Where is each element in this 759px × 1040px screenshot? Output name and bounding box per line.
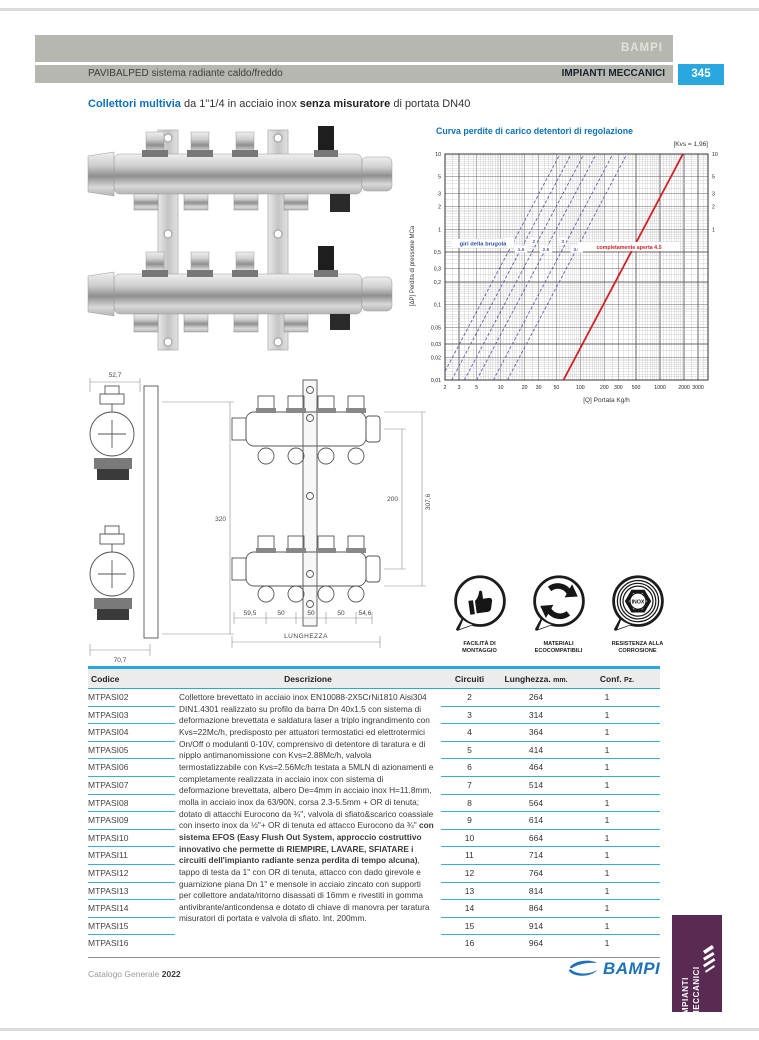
circuiti-cell: 12: [441, 865, 498, 882]
x-tick: 200: [600, 385, 609, 391]
x-tick: 500: [632, 385, 641, 391]
badge-label-line1: RESISTENZA ALLA: [598, 641, 677, 648]
circuiti-cell: 11: [441, 847, 498, 864]
catalog-page: BAMPI PAVIBALPED sistema radiante caldo/…: [0, 0, 759, 1040]
table-row: 75141: [441, 777, 660, 795]
table-row: 43641: [441, 724, 660, 742]
table-row: 33141: [441, 707, 660, 725]
section-side-tab: IMPIANTI MECCANICI: [672, 915, 722, 1012]
header-circuiti: Circuiti: [441, 674, 498, 684]
values-column: 2264133141436415414164641751418564196141…: [441, 689, 660, 953]
recycle-icon: [529, 572, 589, 634]
conf-cell: 1: [574, 759, 660, 776]
lunghezza-cell: 314: [498, 707, 574, 724]
setting-curve: [440, 154, 560, 380]
circuiti-cell: 14: [441, 900, 498, 917]
curve-label: 3: [561, 239, 564, 245]
title-bold-2: senza misuratore: [300, 98, 390, 110]
page-number-badge: 345: [678, 64, 724, 85]
chart-title: Curva perdite di carico detentori di reg…: [436, 126, 742, 136]
front-view: [232, 380, 380, 626]
table-row: 127641: [441, 865, 660, 883]
lunghezza-cell: 664: [498, 830, 574, 847]
table-row: 54141: [441, 742, 660, 760]
x-tick: 3000: [692, 385, 704, 391]
circuiti-cell: 16: [441, 935, 498, 953]
badge-label: RESISTENZA ALLA CORROSIONE: [598, 641, 677, 654]
lunghezza-cell: 264: [498, 689, 574, 706]
x-tick: 50: [553, 385, 559, 391]
header-divider: [35, 62, 673, 65]
code-cell: MTPASI10: [88, 830, 175, 848]
dim-side-height: 320: [215, 516, 226, 523]
dim-length-label: LUNGHEZZA: [284, 633, 328, 640]
y-tick-left: 0,3: [434, 267, 441, 273]
badge-label-line2: MONTAGGIO: [440, 648, 519, 655]
kvs-label: [Kvs = 1,96]: [673, 141, 708, 148]
circuiti-cell: 5: [441, 742, 498, 759]
lunghezza-cell: 414: [498, 742, 574, 759]
badge-corrosion-resistance: INOX RESISTENZA ALLA CORROSIONE: [598, 572, 677, 654]
header-band: BAMPI PAVIBALPED sistema radiante caldo/…: [35, 35, 673, 83]
dim-total-height: 307,6: [425, 493, 432, 510]
table-body: MTPASI02MTPASI03MTPASI04MTPASI05MTPASI06…: [88, 689, 660, 953]
badge-label-line2: ECOCOMPATIBILI: [519, 648, 598, 655]
header-lunghezza: Lunghezza. mm.: [498, 674, 574, 684]
y-tick-left: 1: [438, 227, 441, 233]
badge-label-line1: FACILITÀ DI: [440, 641, 519, 648]
lunghezza-cell: 564: [498, 795, 574, 812]
conf-cell: 1: [574, 724, 660, 741]
y-tick-left: 2: [438, 205, 441, 211]
x-tick: 5: [475, 385, 478, 391]
x-tick: 1000: [654, 385, 666, 391]
circuiti-cell: 7: [441, 777, 498, 794]
description-column: Collettore brevettato in acciaio inox EN…: [175, 689, 441, 953]
conf-cell: 1: [574, 830, 660, 847]
loss-curve-plot: 11.522.533.5giri della brugolacompletame…: [406, 136, 742, 412]
brugola-label: giri della brugola: [460, 242, 507, 248]
circuiti-cell: 10: [441, 830, 498, 847]
code-cell: MTPASI11: [88, 847, 175, 865]
dim-top-width: 52,7: [109, 372, 122, 379]
lunghezza-cell: 364: [498, 724, 574, 741]
inox-icon: INOX: [608, 572, 668, 634]
y-tick-left: 0,1: [434, 303, 441, 309]
y-tick-right: 2: [712, 205, 715, 211]
table-row: 96141: [441, 812, 660, 830]
y-tick-left: 0,03: [431, 342, 441, 348]
lunghezza-cell: 514: [498, 777, 574, 794]
y-tick-left: 0,02: [431, 355, 441, 361]
conf-cell: 1: [574, 707, 660, 724]
code-cell: MTPASI08: [88, 795, 175, 813]
y-tick-left: 0,5: [434, 250, 441, 256]
lunghezza-cell: 964: [498, 935, 574, 953]
table-row: 85641: [441, 795, 660, 813]
x-tick: 30: [536, 385, 542, 391]
x-tick: 2000: [678, 385, 690, 391]
table-row: 148641: [441, 900, 660, 918]
dim-bottom-width: 70,7: [114, 657, 127, 664]
table-row: 64641: [441, 759, 660, 777]
y-tick-right: 3: [712, 191, 715, 197]
badge-label-line2: CORROSIONE: [598, 648, 677, 655]
side-tab-line1: IMPIANTI: [680, 925, 691, 1017]
x-tick: 100: [576, 385, 585, 391]
manifold-bottom-bar: [88, 246, 392, 332]
brand-text: BAMPI: [621, 42, 663, 54]
conf-cell: 1: [574, 900, 660, 917]
conf-cell: 1: [574, 812, 660, 829]
catalog-year: 2022: [162, 969, 181, 979]
badge-easy-mounting: FACILITÀ DI MONTAGGIO: [440, 572, 519, 654]
conf-cell: 1: [574, 847, 660, 864]
x-tick: 2: [444, 385, 447, 391]
code-cell: MTPASI09: [88, 812, 175, 830]
table-row: 138141: [441, 883, 660, 901]
x-tick: 3: [458, 385, 461, 391]
y-tick-right: 10: [712, 152, 718, 158]
pipe-fitting-icon: [701, 943, 717, 973]
title-bold-1: Collettori multivia: [88, 98, 181, 110]
lunghezza-cell: 464: [498, 759, 574, 776]
table-row: 106641: [441, 830, 660, 848]
table-row: 117141: [441, 847, 660, 865]
circuiti-cell: 13: [441, 883, 498, 900]
circuiti-cell: 8: [441, 795, 498, 812]
product-table: Codice Descrizione Circuiti Lunghezza. m…: [88, 666, 660, 953]
y-axis-label: [ΔP] Perdita di pressione MCa: [410, 225, 416, 306]
fully-open-curve: [563, 154, 683, 380]
code-column: MTPASI02MTPASI03MTPASI04MTPASI05MTPASI06…: [88, 689, 175, 953]
footer-catalog-text: Catalogo Generale 2022: [88, 969, 181, 979]
y-tick-left: 0,2: [434, 280, 441, 286]
code-cell: MTPASI16: [88, 935, 175, 953]
side-view: [90, 386, 158, 638]
badge-label-line1: MATERIALI: [519, 641, 598, 648]
lunghezza-cell: 914: [498, 918, 574, 935]
dimension-labels: 52,7 320 70,7 59,5 50 50 50 54,6 LUNGHEZ…: [109, 372, 432, 664]
feature-badges: FACILITÀ DI MONTAGGIO MATERIALI ECOCOMPA…: [440, 572, 678, 654]
table-row: 159141: [441, 918, 660, 936]
setting-curve: [464, 154, 584, 380]
y-tick-right: 1: [712, 227, 715, 233]
conf-cell: 1: [574, 689, 660, 706]
curve-label: 2: [532, 239, 535, 245]
conf-cell: 1: [574, 795, 660, 812]
badge-eco-materials: MATERIALI ECOCOMPATIBILI: [519, 572, 598, 654]
code-cell: MTPASI03: [88, 707, 175, 725]
lunghezza-cell: 614: [498, 812, 574, 829]
catalog-label: Catalogo Generale: [88, 969, 159, 979]
code-cell: MTPASI15: [88, 918, 175, 936]
circuiti-cell: 2: [441, 689, 498, 706]
curve-label: 1.5: [518, 247, 525, 253]
conf-cell: 1: [574, 918, 660, 935]
page-top-edge: [0, 8, 759, 11]
table-row: 169641: [441, 935, 660, 953]
code-cell: MTPASI04: [88, 724, 175, 742]
dim-pitch-1: 59,5: [244, 610, 257, 617]
badge-label: MATERIALI ECOCOMPATIBILI: [519, 641, 598, 654]
dim-pitch-4: 50: [337, 610, 345, 617]
lunghezza-cell: 714: [498, 847, 574, 864]
title-text-1: da 1"1/4 in acciaio inox: [181, 98, 300, 110]
technical-drawing: 52,7 320 70,7 59,5 50 50 50 54,6 LUNGHEZ…: [82, 366, 444, 666]
x-tick: 10: [498, 385, 504, 391]
conf-cell: 1: [574, 742, 660, 759]
bampi-swoosh-icon: [566, 958, 600, 980]
code-cell: MTPASI02: [88, 689, 175, 707]
code-cell: MTPASI05: [88, 742, 175, 760]
badge-label: FACILITÀ DI MONTAGGIO: [440, 641, 519, 654]
circuiti-cell: 6: [441, 759, 498, 776]
conf-cell: 1: [574, 777, 660, 794]
setting-curve: [477, 154, 597, 380]
page-title: Collettori multivia da 1"1/4 in acciaio …: [88, 98, 470, 110]
dim-pitch-5: 54,6: [359, 610, 372, 617]
conf-cell: 1: [574, 865, 660, 882]
header-left-text: PAVIBALPED sistema radiante caldo/freddo: [88, 68, 283, 79]
lunghezza-cell: 764: [498, 865, 574, 882]
conf-cell: 1: [574, 935, 660, 953]
header-codice: Codice: [88, 674, 175, 684]
description-paragraph: Collettore brevettato in acciaio inox EN…: [175, 689, 441, 925]
y-tick-left: 10: [435, 152, 441, 158]
title-text-2: di portata DN40: [390, 98, 470, 110]
logo-text: BAMPI: [603, 959, 660, 979]
inox-text: INOX: [631, 599, 644, 605]
table-header: Codice Descrizione Circuiti Lunghezza. m…: [88, 666, 660, 689]
x-axis-label: [Q] Portata Kg/h: [583, 397, 630, 404]
dim-center-distance: 200: [387, 496, 398, 503]
dimension-lines: [90, 378, 426, 656]
code-cell: MTPASI14: [88, 900, 175, 918]
curve-label: 2.5: [543, 247, 550, 253]
lunghezza-cell: 864: [498, 900, 574, 917]
circuiti-cell: 9: [441, 812, 498, 829]
code-cell: MTPASI12: [88, 865, 175, 883]
bampi-logo: BAMPI: [566, 958, 660, 980]
code-cell: MTPASI13: [88, 883, 175, 901]
header-conf: Conf. Pz.: [574, 674, 660, 684]
y-tick-left: 0,05: [431, 325, 441, 331]
dim-pitch-2: 50: [277, 610, 285, 617]
manifold-top-bar: [88, 126, 392, 212]
x-tick: 300: [614, 385, 623, 391]
table-row: 22641: [441, 689, 660, 707]
code-cell: MTPASI07: [88, 777, 175, 795]
code-cell: MTPASI06: [88, 759, 175, 777]
product-photo: [86, 124, 406, 362]
grid: [445, 154, 708, 380]
conf-cell: 1: [574, 883, 660, 900]
y-tick-right: 5: [712, 175, 715, 181]
circuiti-cell: 4: [441, 724, 498, 741]
dim-pitch-3: 50: [307, 610, 315, 617]
header-descrizione: Descrizione: [175, 674, 441, 684]
lunghezza-cell: 814: [498, 883, 574, 900]
circuiti-cell: 3: [441, 707, 498, 724]
y-tick-left: 5: [438, 175, 441, 181]
x-tick: 20: [522, 385, 528, 391]
open-label: completamente aperta 4.5: [596, 245, 661, 251]
pressure-loss-chart: Curva perdite di carico detentori di reg…: [406, 126, 742, 418]
circuiti-cell: 15: [441, 918, 498, 935]
setting-curve: [507, 154, 627, 380]
header-section-text: IMPIANTI MECCANICI: [562, 68, 665, 79]
page-bottom-edge: [0, 1028, 759, 1031]
y-tick-left: 3: [438, 191, 441, 197]
thumbs-up-icon: [450, 572, 510, 634]
